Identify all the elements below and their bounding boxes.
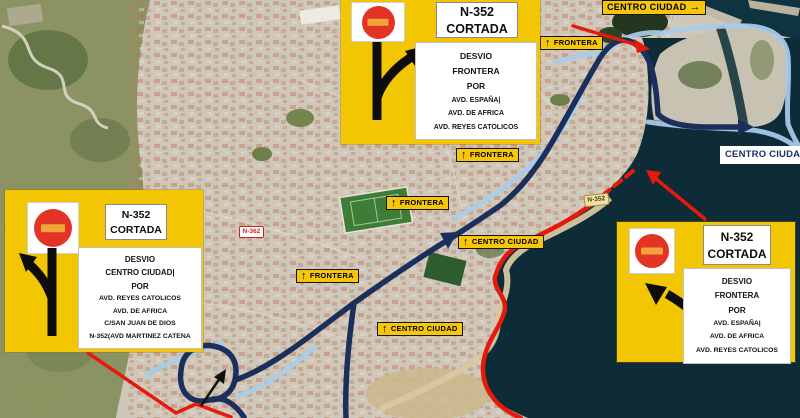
frontera-label: ↑ FRONTERA: [540, 36, 603, 50]
traffic-detour-map: ↑ FRONTERA ↑ FRONTERA ↑ FRONTERA ↑ FRONT…: [0, 0, 800, 418]
detour-sign-left: N-352 CORTADA DESVIO CENTRO CIUDAD| POR …: [5, 190, 203, 352]
centro-ciudad-top-label: CENTRO CIUDAD →: [602, 0, 706, 15]
detour-text: DESVIO CENTRO CIUDAD| POR AVD. REYES CAT…: [78, 247, 202, 349]
centro-ciudad-right-label: CENTRO CIUDAD: [720, 146, 800, 164]
detour-text: DESVIO FRONTERA POR AVD. ESPAÑA| AVD. DE…: [683, 268, 791, 364]
up-arrow-icon: ↑: [391, 199, 397, 207]
road-badge-n362: N-362: [239, 226, 264, 238]
frontera-label: ↑ FRONTERA: [386, 196, 449, 210]
centro-ciudad-label: ↑ CENTRO CIUDAD: [377, 322, 463, 336]
detour-text: DESVIO FRONTERA POR AVD. ESPAÑA| AVD. DE…: [415, 42, 537, 140]
up-arrow-icon: ↑: [463, 238, 469, 246]
detour-sign-right: N-352 CORTADA DESVIO FRONTERA POR AVD. E…: [617, 222, 795, 362]
centro-ciudad-label: ↑ CENTRO CIUDAD: [458, 235, 544, 249]
detour-sign-top: N-352 CORTADA DESVIO FRONTERA POR AVD. E…: [341, 0, 540, 144]
frontera-label: ↑ FRONTERA: [456, 148, 519, 162]
frontera-label: ↑ FRONTERA: [296, 269, 359, 283]
up-arrow-icon: ↑: [461, 151, 467, 159]
fork-left-arrow-icon: [13, 242, 75, 340]
road-closed-plate: N-352 CORTADA: [105, 204, 167, 240]
right-arrow-icon: →: [689, 3, 700, 11]
up-arrow-icon: ↑: [382, 325, 388, 333]
up-arrow-icon: ↑: [301, 272, 307, 280]
up-arrow-icon: ↑: [545, 39, 551, 47]
road-closed-plate: N-352 CORTADA: [703, 225, 771, 265]
road-closed-plate: N-352 CORTADA: [436, 2, 518, 38]
